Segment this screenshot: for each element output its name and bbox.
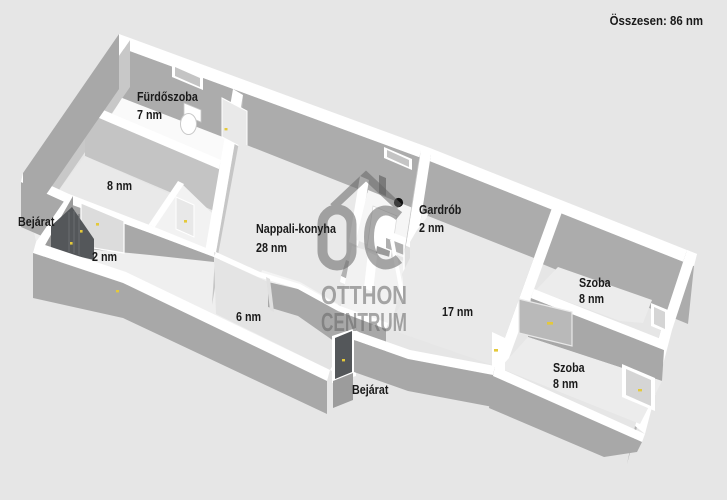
svg-text:28 nm: 28 nm: [256, 241, 287, 255]
svg-text:8 nm: 8 nm: [579, 292, 604, 306]
svg-text:2 nm: 2 nm: [419, 221, 444, 235]
svg-text:2 nm: 2 nm: [92, 250, 117, 264]
svg-text:7 nm: 7 nm: [137, 108, 162, 122]
svg-text:OTTHON: OTTHON: [321, 280, 407, 310]
svg-text:Gardrób: Gardrób: [419, 203, 461, 217]
svg-text:Összesen: 86 nm: Összesen: 86 nm: [610, 12, 704, 28]
svg-text:Bejárat: Bejárat: [18, 215, 55, 229]
svg-text:Szoba: Szoba: [579, 276, 611, 290]
svg-text:CENTRUM: CENTRUM: [321, 307, 407, 337]
svg-text:8 nm: 8 nm: [553, 377, 578, 391]
svg-text:Nappali-konyha: Nappali-konyha: [256, 222, 336, 236]
svg-text:Bejárat: Bejárat: [352, 383, 389, 397]
svg-text:Szoba: Szoba: [553, 361, 585, 375]
svg-text:Fürdőszoba: Fürdőszoba: [137, 90, 198, 104]
svg-text:6 nm: 6 nm: [236, 310, 261, 324]
svg-text:17 nm: 17 nm: [442, 305, 473, 319]
svg-text:8 nm: 8 nm: [107, 179, 132, 193]
